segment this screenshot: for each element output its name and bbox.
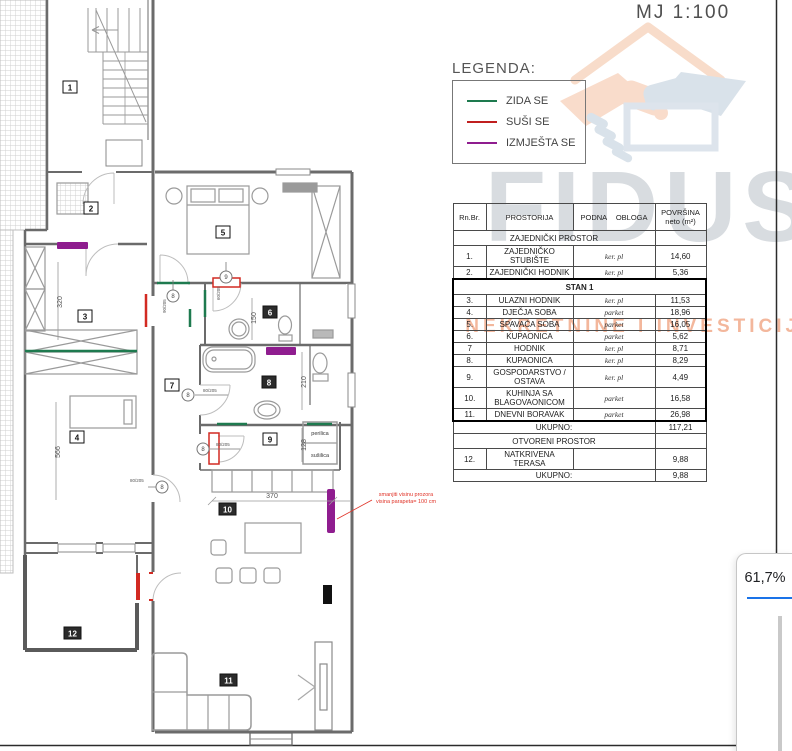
- svg-text:3: 3: [83, 313, 88, 322]
- zoom-value[interactable]: 61,7%: [737, 570, 792, 586]
- svg-text:9: 9: [268, 436, 273, 445]
- appliance-labels: perilica sušilica: [311, 431, 330, 459]
- legend-box: ZIDA SE SUŠI SE IZMJEŠTA SE: [452, 80, 586, 164]
- purple-line-swatch: [467, 142, 497, 144]
- svg-text:566: 566: [55, 446, 62, 458]
- svg-text:80/205: 80/205: [130, 478, 144, 483]
- svg-text:4: 4: [75, 434, 80, 443]
- room-badge-12: 12: [64, 627, 81, 639]
- svg-text:1: 1: [68, 84, 73, 93]
- green-line-swatch: [467, 100, 497, 102]
- table-row: 6.KUPAONICAparket5,62: [453, 331, 706, 343]
- section-otvoreni-prostor: OTVORENI PROSTOR: [453, 434, 706, 449]
- svg-text:7: 7: [170, 382, 175, 391]
- table-row: 4.DJEČJA SOBAparket18,96: [453, 307, 706, 319]
- zoom-popup[interactable]: 61,7%: [736, 553, 792, 751]
- legend-item-izmjesta-se: IZMJEŠTA SE: [453, 132, 585, 153]
- legend-title: LEGENDA:: [452, 60, 586, 77]
- room-badge-10: 10: [219, 503, 236, 515]
- room-schedule-table: Rn.Br. PROSTORIJA PODNA OBLOGA POVRŠINAn…: [452, 203, 707, 482]
- svg-text:128: 128: [301, 439, 308, 451]
- furniture: [25, 183, 340, 730]
- note-line-2: visina parapeta= 100 cm: [376, 499, 436, 505]
- svg-text:60/205: 60/205: [216, 286, 221, 300]
- svg-text:150: 150: [251, 312, 258, 324]
- total-row-otvoreni: UKUPNO: 9,88: [453, 470, 706, 482]
- table-row: 5.SPAVAĆA SOBAparket16,05: [453, 319, 706, 331]
- room-badge-1: 1: [63, 81, 77, 93]
- svg-text:370: 370: [266, 493, 278, 500]
- note-line-1: smanjiti visinu prozora: [379, 492, 434, 498]
- svg-text:10: 10: [223, 506, 232, 515]
- svg-text:6: 6: [268, 309, 273, 318]
- table-row: 12.NATKRIVENA TERASA9,88: [453, 449, 706, 470]
- legend-item-susi-se: SUŠI SE: [453, 111, 585, 132]
- section-stan-1: STAN 1: [453, 279, 706, 295]
- table-row: 1.ZAJEDNIČKO STUBIŠTEker. pl14,60: [453, 246, 706, 267]
- izmjesta-se-marks: [57, 242, 335, 533]
- svg-text:2: 2: [89, 205, 94, 214]
- room-badge-8: 8: [262, 376, 276, 388]
- table-row: 10.KUHINJA SA BLAGOVAONICOMparket16,58: [453, 388, 706, 409]
- staircase: [88, 8, 148, 166]
- svg-text:320: 320: [57, 296, 64, 308]
- svg-text:11: 11: [224, 677, 233, 686]
- room-badge-2: 2: [84, 202, 98, 214]
- room-badge-5: 5: [216, 226, 230, 238]
- dryer-label: sušilica: [311, 453, 330, 459]
- floor-plan-sheet: FIDUS NEKRETNINE I INVESTICIJE: [0, 0, 792, 751]
- table-row: 3.ULAZNI HODNIKker. pl11,53: [453, 295, 706, 307]
- room-badge-7: 7: [165, 379, 179, 391]
- scale-label: MJ 1:100: [636, 2, 730, 24]
- legend: LEGENDA: ZIDA SE SUŠI SE IZMJEŠTA SE: [452, 60, 586, 164]
- room-badge-9: 9: [263, 433, 277, 445]
- total-row-stan: UKUPNO: 117,21: [453, 421, 706, 434]
- table-row: 9.GOSPODARSTVO / OSTAVAker. pl4,49: [453, 367, 706, 388]
- zoom-underline: [747, 597, 792, 599]
- svg-text:80/205: 80/205: [203, 388, 217, 393]
- room-badge-4: 4: [70, 431, 84, 443]
- svg-text:12: 12: [68, 630, 77, 639]
- svg-text:5: 5: [221, 229, 226, 238]
- table-row: 7HODNIKker. pl8,71: [453, 343, 706, 355]
- table-row: 11.DNEVNI BORAVAKparket26,98: [453, 409, 706, 422]
- walls: [25, 0, 352, 732]
- legend-item-zida-se: ZIDA SE: [453, 90, 585, 111]
- red-line-swatch: [467, 121, 497, 123]
- svg-text:90/205: 90/205: [162, 299, 167, 313]
- table-row: 2.ZAJEDNIČKI HODNIKker. pl5,36: [453, 267, 706, 280]
- table-header-row: Rn.Br. PROSTORIJA PODNA OBLOGA POVRŠINAn…: [453, 204, 706, 231]
- room-badge-6: 6: [263, 306, 277, 318]
- room-badge-11: 11: [220, 674, 237, 686]
- table-row: 8.KUPAONICAker. pl8,29: [453, 355, 706, 367]
- zoom-slider[interactable]: [778, 616, 782, 751]
- svg-text:210: 210: [301, 376, 308, 388]
- svg-text:80/205: 80/205: [216, 442, 230, 447]
- door-tags: [148, 262, 240, 493]
- room-badge-3: 3: [78, 310, 92, 322]
- section-zajednicki-prostor: ZAJEDNIČKI PROSTOR: [453, 231, 706, 246]
- washer-label: perilica: [311, 431, 329, 437]
- svg-text:8: 8: [267, 379, 272, 388]
